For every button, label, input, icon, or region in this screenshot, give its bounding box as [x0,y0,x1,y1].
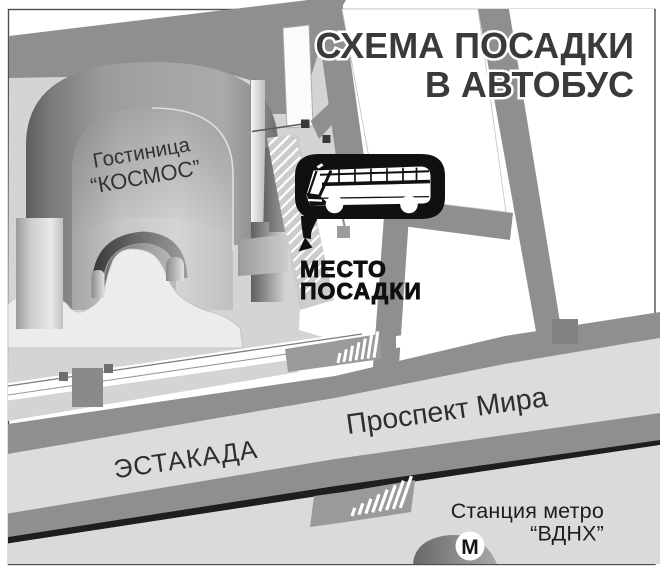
svg-text:“ВДНХ”: “ВДНХ” [530,522,604,546]
svg-text:Станция метро: Станция метро [451,499,604,523]
svg-text:М: М [461,536,479,559]
svg-text:СХЕМА ПОСАДКИ: СХЕМА ПОСАДКИ [316,25,634,66]
svg-text:ПОСАДКИ: ПОСАДКИ [300,278,422,304]
svg-text:В АВТОБУС: В АВТОБУС [425,64,634,105]
